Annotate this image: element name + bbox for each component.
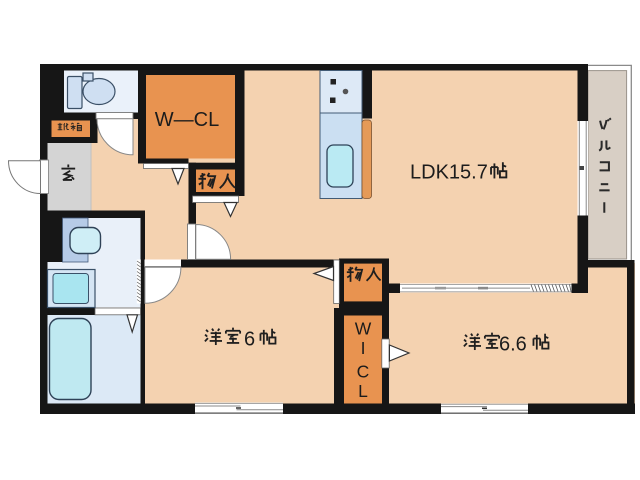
svg-text:I: I [361,338,366,358]
svg-text:L: L [358,381,368,401]
svg-text:6.6: 6.6 [499,334,527,356]
svg-text:C: C [357,362,370,382]
svg-text:6: 6 [244,329,255,351]
svg-text:W: W [355,319,372,339]
svg-text:LDK15.7: LDK15.7 [410,162,488,184]
svg-text:W—CL: W—CL [155,109,219,131]
